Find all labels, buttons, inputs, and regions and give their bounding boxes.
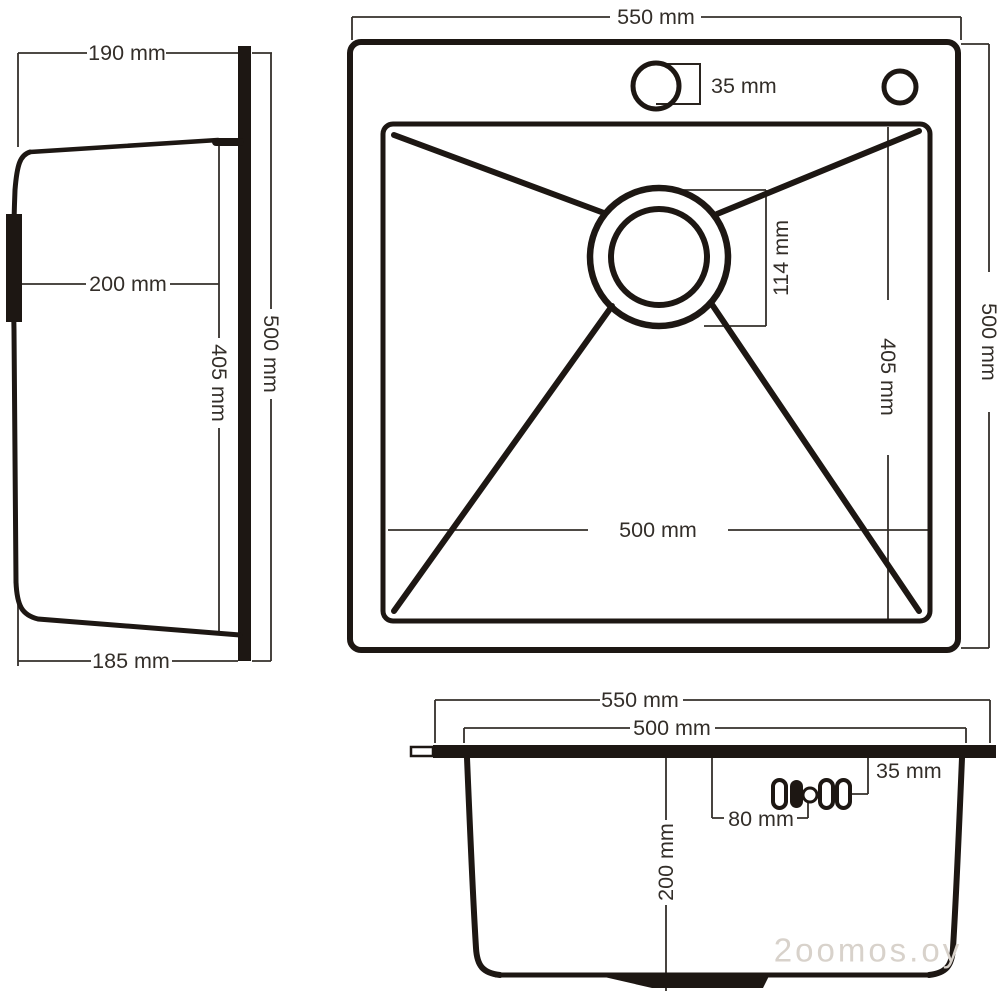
dim-side-top-width: 190 mm <box>88 41 166 65</box>
dim-side-bowl-height: 405 mm <box>207 344 231 422</box>
side-wall-band <box>6 214 22 322</box>
dim-top-total-width: 550 mm <box>617 5 695 29</box>
drain-inner-ring <box>611 209 707 305</box>
bowl-inner-edge <box>383 124 930 621</box>
bowl-left-wall <box>467 758 500 975</box>
dim-front-bowl-depth: 200 mm <box>654 823 678 901</box>
sink-technical-drawing: 190 mm 200 mm 405 mm 500 mm 185 mm <box>0 0 1000 1000</box>
dim-top-faucet-hole: 35 mm <box>711 74 777 98</box>
dim-front-total-width: 550 mm <box>601 688 679 712</box>
dim-front-bowl-width: 500 mm <box>633 716 711 740</box>
side-view: 190 mm 200 mm 405 mm 500 mm 185 mm <box>6 41 283 673</box>
faucet-hole-symbols <box>773 780 850 808</box>
dim-top-total-depth: 500 mm <box>977 303 1000 381</box>
dim-top-bowl-width: 500 mm <box>619 518 697 542</box>
front-rim-bar <box>433 745 996 758</box>
soap-dispenser-hole <box>884 71 916 103</box>
mounting-tab <box>411 747 433 756</box>
top-view: 550 mm 35 mm 114 mm 405 mm 500 mm 500 mm <box>350 5 1000 650</box>
dim-top-drain-diameter: 114 mm <box>769 220 793 296</box>
dim-side-mid-depth: 200 mm <box>89 272 167 296</box>
drawing-canvas: 190 mm 200 mm 405 mm 500 mm 185 mm <box>0 0 1000 1000</box>
drain-boss <box>600 976 769 988</box>
top-view-sink-outline <box>350 42 958 650</box>
dim-side-total-height: 500 mm <box>259 315 283 393</box>
dim-side-bottom-width: 185 mm <box>92 649 170 673</box>
top-view-dimension-lines <box>352 17 989 648</box>
sink-outer-edge <box>350 42 958 650</box>
dim-top-bowl-depth: 405 mm <box>876 338 900 416</box>
dim-front-hole-spacing: 80 mm <box>728 807 794 831</box>
dim-front-faucet-hole: 35 mm <box>876 759 942 783</box>
faucet-hole <box>633 63 679 109</box>
watermark: 2oomos.oy <box>774 932 962 969</box>
